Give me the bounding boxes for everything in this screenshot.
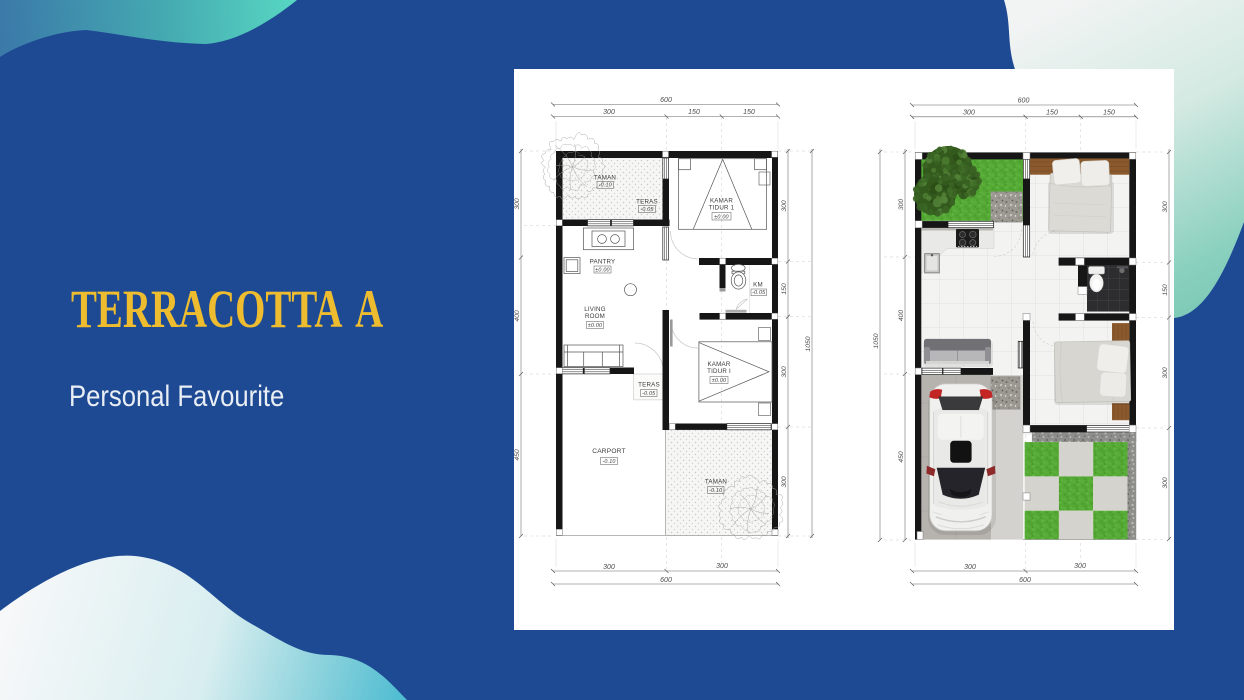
svg-text:150: 150 (781, 283, 788, 295)
svg-text:600: 600 (1018, 98, 1030, 105)
svg-text:450: 450 (514, 449, 521, 461)
svg-text:300: 300 (603, 564, 615, 571)
svg-text:300: 300 (898, 199, 905, 211)
svg-text:-0.05: -0.05 (640, 207, 654, 213)
svg-text:300: 300 (603, 109, 615, 116)
svg-text:300: 300 (781, 366, 788, 378)
svg-text:600: 600 (660, 97, 672, 104)
svg-text:150: 150 (1103, 109, 1115, 116)
svg-text:±0.00: ±0.00 (595, 267, 609, 273)
svg-text:600: 600 (1019, 577, 1031, 584)
svg-text:300: 300 (781, 476, 788, 488)
svg-text:300: 300 (1074, 563, 1086, 570)
svg-text:1050: 1050 (873, 333, 880, 348)
svg-text:300: 300 (963, 109, 975, 116)
svg-text:-0.05: -0.05 (642, 391, 656, 397)
svg-text:TIDUR 1: TIDUR 1 (709, 205, 735, 212)
svg-text:TERAS: TERAS (638, 382, 660, 389)
svg-text:400: 400 (514, 310, 521, 322)
svg-text:TAMAN: TAMAN (705, 479, 727, 486)
svg-text:KAMAR: KAMAR (707, 361, 730, 368)
svg-text:LIVING: LIVING (584, 306, 606, 313)
svg-text:400: 400 (898, 310, 905, 322)
svg-text:300: 300 (781, 200, 788, 212)
svg-text:300: 300 (964, 564, 976, 571)
svg-text:TERAS: TERAS (636, 199, 658, 206)
svg-text:150: 150 (1046, 109, 1058, 116)
svg-text:±0.00: ±0.00 (712, 378, 726, 384)
svg-text:600: 600 (660, 577, 672, 584)
svg-text:450: 450 (898, 451, 905, 463)
svg-text:150: 150 (1162, 284, 1169, 296)
svg-text:±0.00: ±0.00 (588, 323, 602, 329)
svg-text:150: 150 (688, 109, 700, 116)
svg-text:300: 300 (1162, 201, 1169, 213)
svg-text:300: 300 (1162, 477, 1169, 489)
svg-text:ROOM: ROOM (585, 313, 605, 320)
svg-text:-0.10: -0.10 (709, 488, 722, 494)
svg-text:TIDUR I: TIDUR I (707, 368, 731, 375)
svg-text:300: 300 (514, 198, 521, 210)
svg-text:PANTRY: PANTRY (590, 259, 616, 266)
svg-text:CARPORT: CARPORT (592, 448, 626, 455)
svg-text:KAMAR: KAMAR (710, 198, 733, 205)
svg-text:300: 300 (716, 563, 728, 570)
svg-text:TAMAN: TAMAN (594, 175, 616, 182)
svg-text:±0.00: ±0.00 (714, 214, 728, 220)
svg-text:300: 300 (1162, 367, 1169, 379)
svg-text:150: 150 (743, 109, 755, 116)
svg-text:1050: 1050 (805, 336, 812, 351)
svg-text:-0.10: -0.10 (602, 459, 615, 465)
svg-text:-0.10: -0.10 (599, 183, 612, 189)
svg-text:KM: KM (753, 282, 763, 289)
svg-text:-0.05: -0.05 (752, 290, 766, 296)
